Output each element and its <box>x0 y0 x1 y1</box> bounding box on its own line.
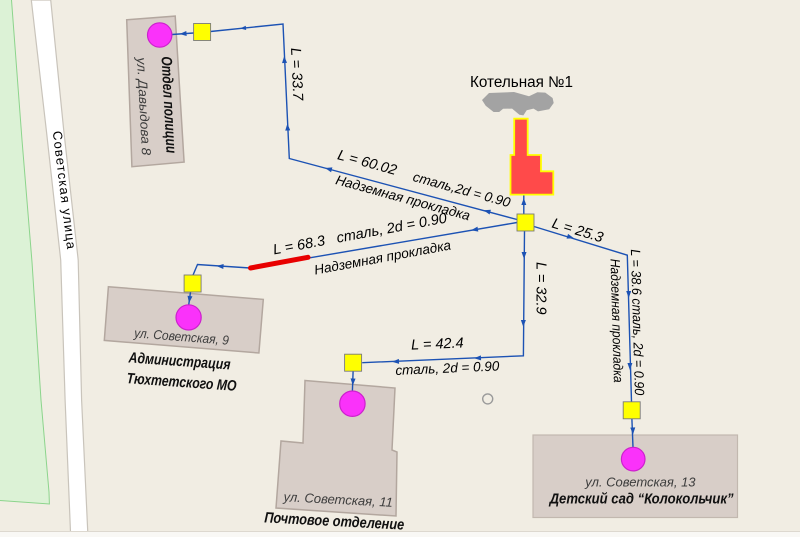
svg-text:L = 32.9: L = 32.9 <box>532 262 548 315</box>
svg-text:ул. Советская, 13: ул. Советская, 13 <box>584 475 696 490</box>
svg-text:L = 33.7: L = 33.7 <box>287 47 306 101</box>
svg-text:Котельная №1: Котельная №1 <box>470 74 573 91</box>
svg-text:Детский сад “Колокольчик”: Детский сад “Колокольчик” <box>548 491 734 508</box>
svg-text:L = 42.4: L = 42.4 <box>411 335 464 353</box>
